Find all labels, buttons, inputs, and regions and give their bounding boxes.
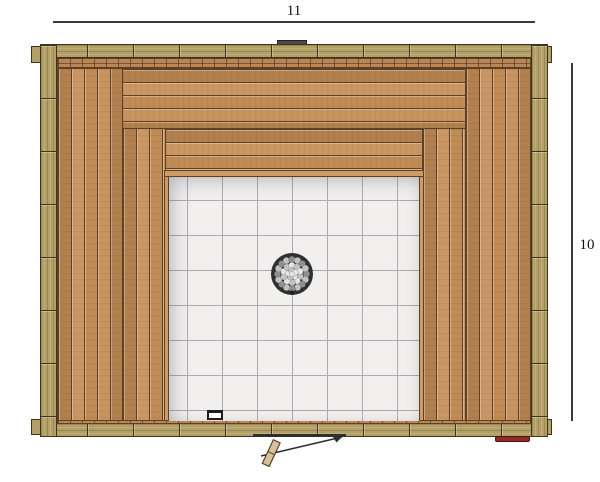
bench-right-upper-tier — [465, 68, 531, 421]
bench-left-upper-tier — [57, 68, 123, 421]
red-threshold-marker — [495, 436, 530, 442]
bench-fascia-top — [164, 170, 424, 177]
floor-vent — [207, 410, 223, 420]
bench-fascia-right — [419, 170, 424, 421]
right-dimension-label: 10 — [575, 238, 599, 253]
bench-top-upper-tier — [122, 68, 466, 129]
right-wall — [531, 44, 548, 437]
top-dimension-label: 11 — [278, 4, 310, 19]
bench-right-lower-tier — [422, 128, 466, 421]
top-wall — [40, 44, 548, 58]
sauna-plan-drawing: 11 10 — [0, 0, 600, 482]
top-rail — [57, 58, 531, 68]
bench-top-lower-tier — [165, 128, 423, 171]
door-swing-indicator — [250, 428, 360, 474]
bench-left-lower-tier — [122, 128, 166, 421]
sauna-heater-icon — [270, 252, 314, 296]
tile-floor — [169, 177, 419, 421]
left-wall — [40, 44, 57, 437]
right-dimension-line — [571, 63, 573, 421]
top-dimension-line — [53, 21, 535, 23]
